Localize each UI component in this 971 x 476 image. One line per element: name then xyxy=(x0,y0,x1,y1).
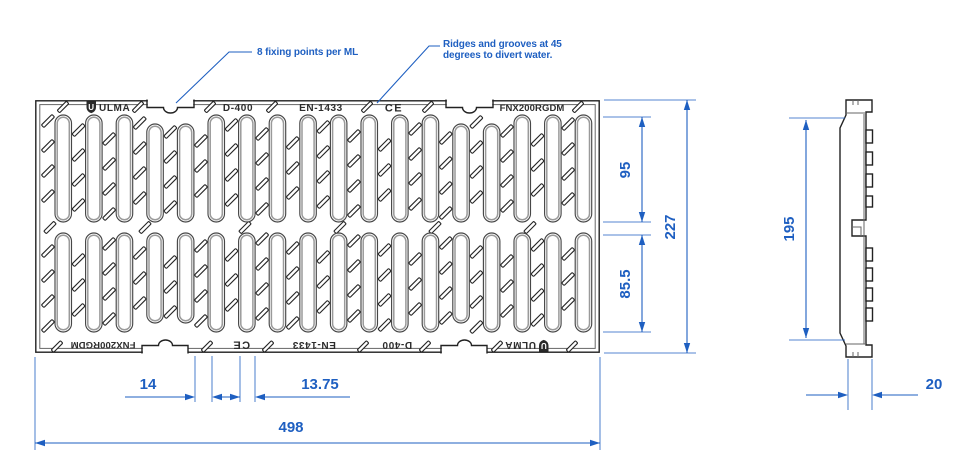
brand-initial: U xyxy=(541,341,547,350)
standard-label: EN-1433 xyxy=(292,339,336,350)
dimension-rib-width: 13.75 xyxy=(230,356,350,402)
fixing-notch-bottom-2 xyxy=(441,340,487,354)
ce-mark: CE xyxy=(232,339,250,351)
ce-mark: CE xyxy=(385,103,403,115)
load-class-label: D-400 xyxy=(223,103,253,114)
ulma-shield-icon: U xyxy=(539,340,549,352)
ulma-shield-icon: U xyxy=(87,102,97,114)
annotation-fixing-text: 8 fixing points per ML xyxy=(257,47,358,58)
fixing-notch-bottom-1 xyxy=(142,340,188,354)
dim-13-75: 13.75 xyxy=(301,376,339,393)
annotation-ridges-text-line1: Ridges and grooves at 45 xyxy=(443,39,562,50)
dim-498: 498 xyxy=(278,419,303,436)
standard-label: EN-1433 xyxy=(299,103,343,114)
model-label: FNX200RGDM xyxy=(71,339,136,350)
dimension-overall-length: 498 xyxy=(35,357,600,450)
dim-95: 95 xyxy=(617,162,634,179)
drain-slots xyxy=(55,115,592,332)
annotation-ridges: Ridges and grooves at 45 degrees to dive… xyxy=(377,39,562,103)
annotation-fixing-points: 8 fixing points per ML xyxy=(176,47,358,103)
dimension-thickness: 20 xyxy=(806,359,942,410)
dimension-slot-width: 14 xyxy=(125,356,240,402)
grate-drawing: U ULMA D-400 EN-1433 CE FNX200RGDM U ULM… xyxy=(0,0,971,476)
dim-14: 14 xyxy=(140,376,157,393)
model-label: FNX200RGDM xyxy=(500,103,565,114)
dimension-overall-height: 227 xyxy=(604,100,696,353)
brand-label: ULMA xyxy=(505,339,536,350)
dimension-top-slot-length: 95 xyxy=(603,117,651,222)
brand-label: ULMA xyxy=(99,103,130,114)
fixing-notch-top-1 xyxy=(147,99,194,113)
technical-drawing-canvas: U ULMA D-400 EN-1433 CE FNX200RGDM U ULM… xyxy=(0,0,971,476)
dim-85-5: 85.5 xyxy=(617,269,634,298)
dim-227: 227 xyxy=(662,214,679,239)
grate-top-view: U ULMA D-400 EN-1433 CE FNX200RGDM U ULM… xyxy=(36,99,599,354)
load-class-label: D-400 xyxy=(382,339,412,350)
dim-20: 20 xyxy=(926,376,943,393)
dimension-side-height: 195 xyxy=(781,118,845,340)
dim-195: 195 xyxy=(781,216,798,241)
fixing-notch-top-2 xyxy=(446,99,493,113)
dimension-bottom-slot-length: 85.5 xyxy=(603,235,651,332)
annotation-ridges-text-line2: degrees to divert water. xyxy=(443,50,553,61)
brand-initial: U xyxy=(88,103,94,112)
side-profile-tabs xyxy=(866,130,873,321)
grate-side-view xyxy=(840,100,873,357)
